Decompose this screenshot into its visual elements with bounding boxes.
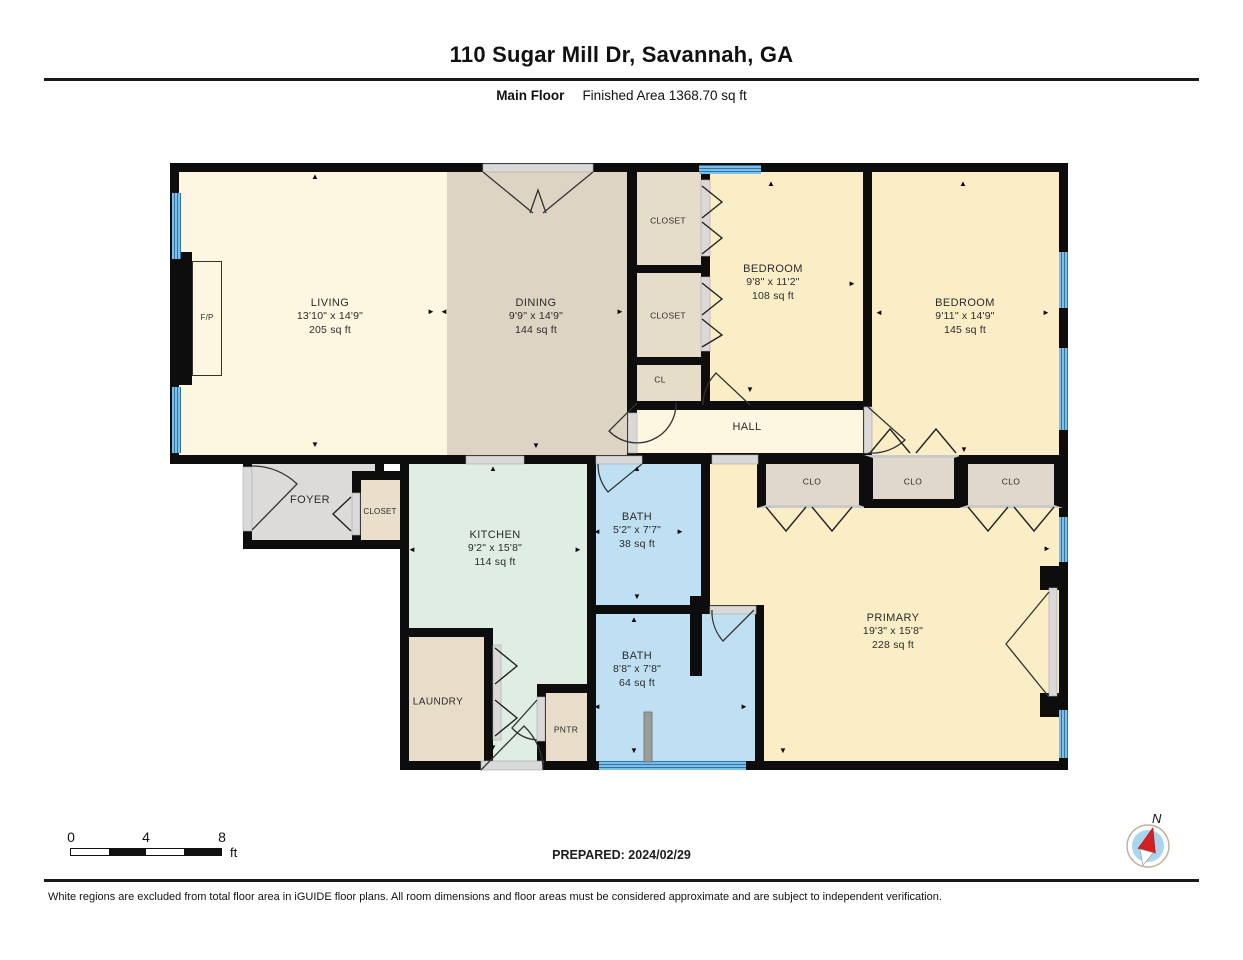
dimension-arrow-icon: ▼ [630, 747, 638, 755]
wall-divider [637, 265, 701, 273]
dimension-arrow-icon: ▲ [633, 465, 641, 473]
dimension-arrow-icon: ▲ [311, 173, 319, 181]
scale-tick-8: 8 [218, 829, 226, 845]
window-icon [172, 387, 181, 453]
dimension-arrow-icon: ▼ [960, 446, 968, 454]
room-label-bedroom1: BEDROOM9'8" x 11'2"108 sq ft [743, 262, 803, 304]
room-label-foyer: FOYER [290, 493, 330, 507]
dimension-arrow-icon: ▼ [633, 593, 641, 601]
dimension-arrow-icon: ► [848, 280, 856, 288]
finished-area-label: Finished Area 1368.70 sq ft [582, 88, 746, 103]
room-label-bath2: BATH8'8" x 7'8"64 sq ft [613, 649, 661, 691]
closet-column [628, 163, 710, 410]
room-label-laundry: LAUNDRY [413, 696, 463, 709]
floor-label: Main Floor [496, 88, 564, 103]
dimension-arrow-icon: ▲ [959, 180, 967, 188]
window-icon [1059, 517, 1068, 562]
window-icon [599, 761, 746, 770]
dimension-arrow-icon: ◄ [440, 308, 448, 316]
window-icon [1059, 348, 1068, 430]
window-icon [699, 165, 761, 174]
room-label-cl: CL [654, 374, 665, 385]
floor-plan-page: 110 Sugar Mill Dr, Savannah, GA Main Flo… [0, 0, 1243, 960]
window-icon [172, 193, 181, 259]
room-label-dining: DINING9'9" x 14'9"144 sq ft [509, 296, 563, 338]
floor-subtitle: Main FloorFinished Area 1368.70 sq ft [0, 88, 1243, 103]
dimension-arrow-icon: ► [427, 308, 435, 316]
dimension-arrow-icon: ► [574, 546, 582, 554]
room-living-dining [170, 163, 636, 464]
dimension-arrow-icon: ◄ [593, 703, 601, 711]
window-icon [1059, 710, 1068, 758]
room-label-fireplace: F/P [200, 313, 213, 323]
wall-bump [1040, 566, 1068, 590]
room-label-clo3: CLO [1002, 476, 1020, 487]
dimension-arrow-icon: ► [1043, 545, 1051, 553]
dimension-arrow-icon: ► [1042, 309, 1050, 317]
dimension-arrow-icon: ◄ [593, 528, 601, 536]
room-label-primary: PRIMARY19'3" x 15'8"228 sq ft [863, 611, 923, 653]
dimension-arrow-icon: ◄ [875, 309, 883, 317]
room-label-clo2: CLO [904, 476, 922, 487]
dimension-arrow-icon: ▼ [489, 744, 497, 752]
dimension-arrow-icon: ► [740, 703, 748, 711]
prepared-date: PREPARED: 2024/02/29 [0, 848, 1243, 862]
dimension-arrow-icon: ▼ [779, 747, 787, 755]
footer-rule [44, 879, 1199, 882]
dimension-arrow-icon: ▲ [767, 180, 775, 188]
room-label-closet-a: CLOSET [650, 215, 686, 226]
room-label-bath1: BATH5'2" x 7'7"38 sq ft [613, 510, 661, 552]
room-label-kitchen: KITCHEN9'2" x 15'8"114 sq ft [468, 528, 522, 570]
room-label-bedroom2: BEDROOM9'11" x 14'9"145 sq ft [935, 296, 995, 338]
compass-north-label: N [1152, 811, 1162, 826]
dimension-arrow-icon: ► [616, 308, 624, 316]
dimension-arrow-icon: ▲ [630, 616, 638, 624]
dimension-arrow-icon: ▲ [489, 465, 497, 473]
page-title: 110 Sugar Mill Dr, Savannah, GA [0, 42, 1243, 68]
wall-stub-bath [690, 596, 702, 676]
room-label-living: LIVING13'10" x 14'9"205 sq ft [297, 296, 363, 338]
dimension-arrow-icon: ▼ [311, 441, 319, 449]
dimension-arrow-icon: ▼ [532, 442, 540, 450]
wall-divider [637, 357, 701, 365]
dimension-arrow-icon: ◄ [408, 546, 416, 554]
room-label-clo1: CLO [803, 476, 821, 487]
disclaimer-text: White regions are excluded from total fl… [48, 891, 1198, 903]
window-icon [1059, 252, 1068, 308]
scale-tick-4: 4 [142, 829, 150, 845]
room-label-hall: HALL [732, 420, 761, 434]
room-label-pantry: PNTR [554, 724, 578, 735]
dimension-arrow-icon: ► [676, 528, 684, 536]
scale-tick-0: 0 [67, 829, 75, 845]
room-label-closet-b: CLOSET [650, 310, 686, 321]
header-rule [44, 78, 1199, 81]
room-label-foyer-closet: CLOSET [363, 507, 396, 517]
dimension-arrow-icon: ▼ [746, 386, 754, 394]
dimension-arrow-icon: ◄ [180, 312, 188, 320]
